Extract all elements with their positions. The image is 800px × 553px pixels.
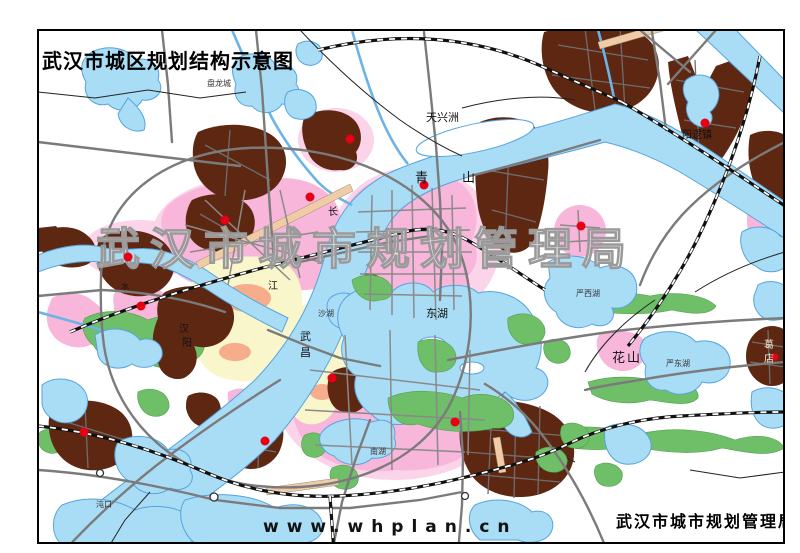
- town-center-marker: [346, 135, 355, 144]
- town-center-marker: [137, 302, 146, 311]
- town-center-marker: [306, 193, 315, 202]
- label-tianxingzhou: 天兴洲: [426, 111, 459, 124]
- label-hanyang-2: 阳: [182, 337, 192, 349]
- town-center-marker: [701, 119, 710, 128]
- label-changjiang-2: 江: [268, 280, 278, 292]
- town-center-marker: [261, 437, 270, 446]
- label-yangluozhen: 阳逻镇: [682, 128, 712, 141]
- mixed-use-patch: [219, 343, 251, 361]
- label-yanxihu: 严西湖: [576, 289, 600, 298]
- label-wuchang-2: 昌: [300, 346, 311, 359]
- interchange-symbol: [210, 493, 218, 501]
- map-canvas: 武汉市城市规划管理局 盘龙城 天兴洲 青 山 阳逻镇 东湖 沙湖 南: [38, 22, 800, 553]
- lake: [296, 41, 322, 65]
- lake: [605, 424, 652, 464]
- label-qingshan-2: 山: [462, 170, 477, 185]
- label-yandonghu: 严东湖: [666, 358, 690, 368]
- website-url[interactable]: www.whplan.cn: [263, 517, 518, 537]
- label-shahu: 沙湖: [318, 309, 334, 318]
- map-title: 武汉市城区规划结构示意图: [42, 49, 294, 73]
- label-nanhu: 南湖: [370, 446, 386, 456]
- lake: [751, 388, 795, 428]
- town-center-marker: [577, 222, 586, 231]
- interchange-symbol: [97, 470, 104, 477]
- lake: [285, 90, 317, 120]
- label-wuchang-1: 武: [300, 330, 311, 343]
- label-zhuankou: 沌口: [96, 499, 112, 509]
- label-gedian-2: 店: [764, 352, 774, 365]
- lake: [754, 282, 794, 321]
- label-gedian-1: 葛: [764, 338, 774, 351]
- label-changjiang-1: 长: [328, 206, 338, 218]
- label-huashan: 花山: [612, 350, 642, 365]
- town-center-marker: [80, 428, 89, 437]
- secondary-road: [690, 470, 785, 478]
- planning-map-page: 武汉市城市规划管理局 盘龙城 天兴洲 青 山 阳逻镇 东湖 沙湖 南: [0, 0, 800, 553]
- town-center-marker: [328, 374, 337, 383]
- label-hanyang-1: 汉: [179, 323, 189, 335]
- label-hanshui: 水: [121, 281, 129, 291]
- lake: [42, 379, 88, 423]
- road: [162, 30, 172, 142]
- town-center-marker: [451, 418, 460, 427]
- wuhan-planning-map: 武汉市城市规划管理局 盘龙城 天兴洲 青 山 阳逻镇 东湖 沙湖 南: [0, 0, 800, 553]
- town-center-marker: [124, 253, 133, 262]
- town-center-marker: [221, 216, 230, 225]
- label-panlongcheng: 盘龙城: [207, 78, 231, 88]
- secondary-road: [462, 97, 575, 108]
- watermark-text: 武汉市城市规划管理局: [96, 225, 636, 274]
- green-area: [138, 389, 169, 416]
- label-donghu: 东湖: [426, 307, 448, 320]
- label-qingshan-1: 青: [415, 170, 430, 185]
- interchange-symbol: [462, 493, 469, 500]
- agency-name: 武汉市城市规划管理局: [616, 512, 796, 531]
- industrial-area: [38, 226, 61, 252]
- tree-symbol: [594, 463, 622, 486]
